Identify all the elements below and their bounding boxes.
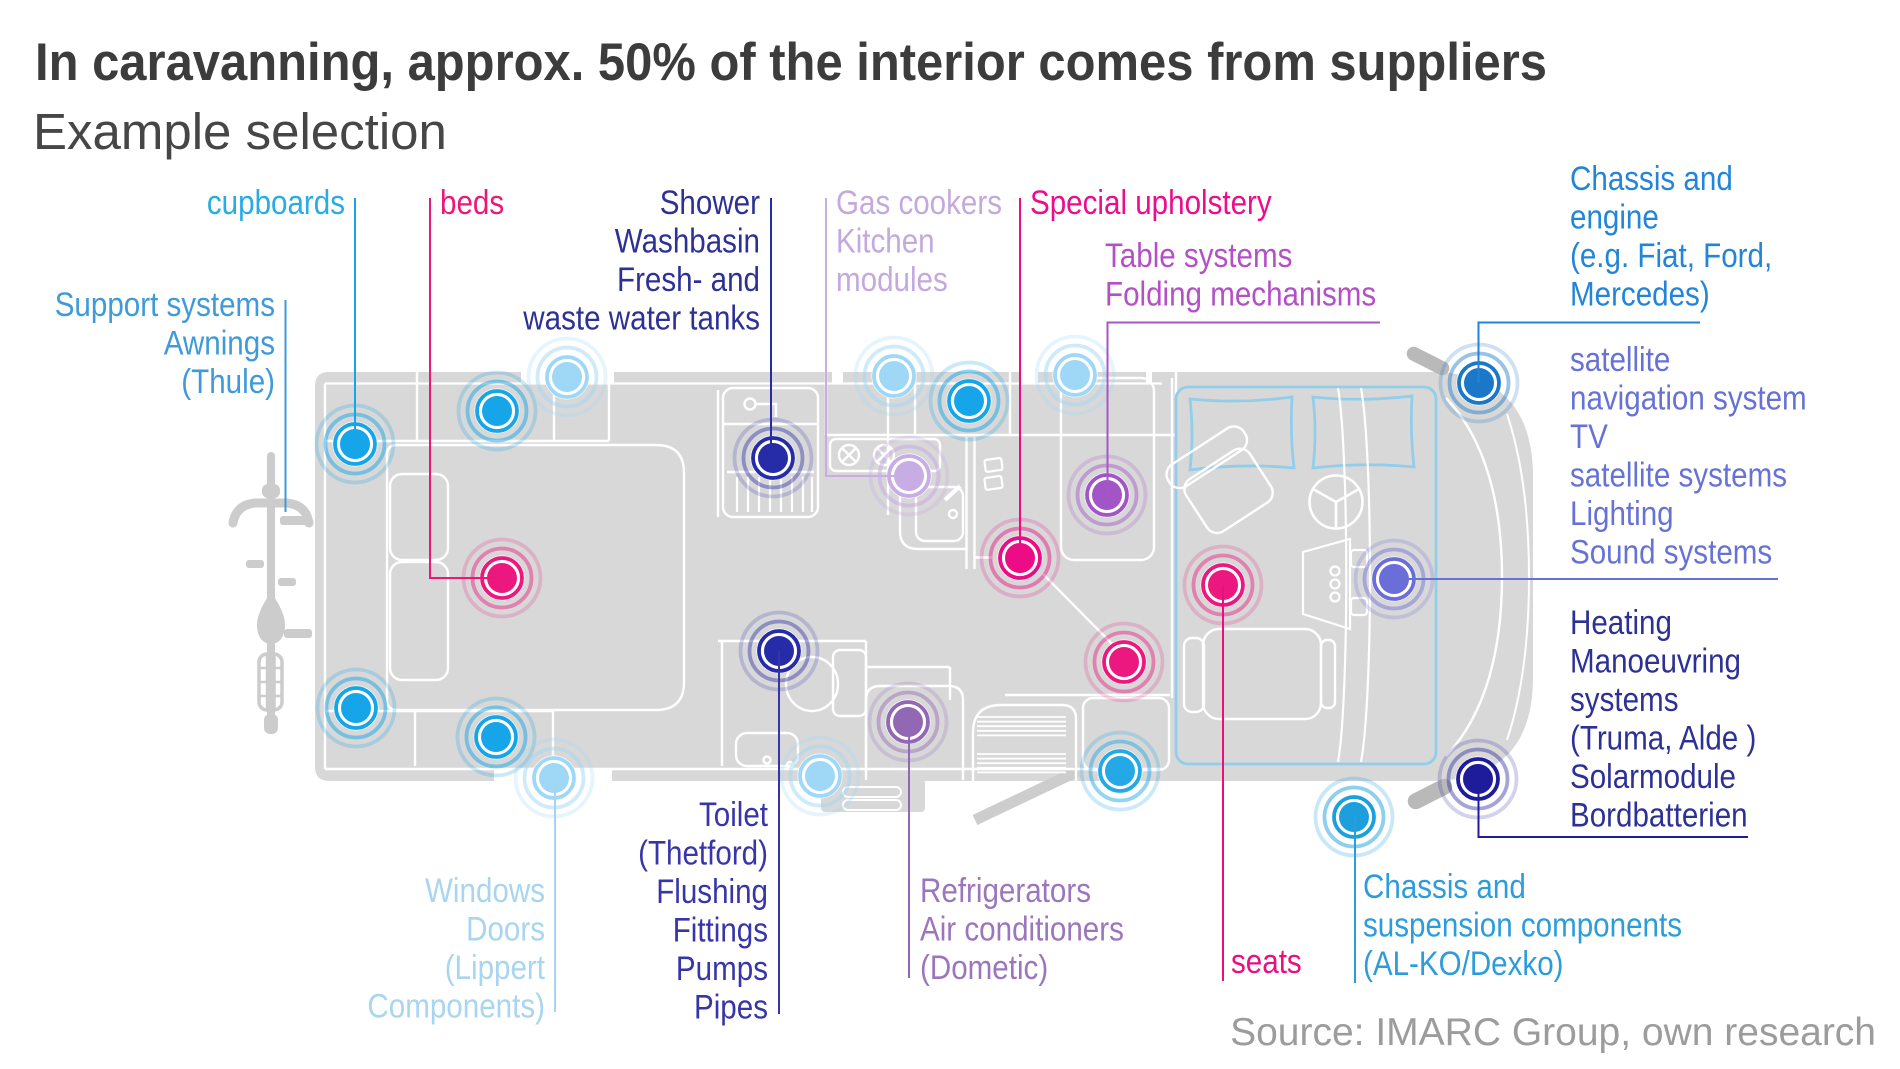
svg-text:modules: modules [836, 261, 948, 299]
svg-text:(Lippert: (Lippert [445, 949, 546, 987]
svg-text:Manoeuvring: Manoeuvring [1570, 643, 1741, 681]
svg-text:Chassis and: Chassis and [1570, 160, 1733, 198]
svg-text:Example selection: Example selection [33, 103, 447, 160]
svg-text:beds: beds [440, 184, 504, 222]
svg-text:satellite systems: satellite systems [1570, 457, 1787, 495]
svg-text:waste water tanks: waste water tanks [522, 300, 760, 338]
svg-text:Support systems: Support systems [55, 286, 275, 324]
svg-text:Pipes: Pipes [694, 989, 768, 1027]
svg-text:(Truma, Alde ): (Truma, Alde ) [1570, 720, 1756, 758]
svg-text:Solarmodule: Solarmodule [1570, 758, 1736, 796]
svg-text:cupboards: cupboards [207, 184, 345, 222]
svg-text:Chassis and: Chassis and [1363, 868, 1526, 906]
svg-text:Awnings: Awnings [164, 325, 275, 363]
svg-text:Toilet: Toilet [699, 796, 768, 834]
svg-text:Pumps: Pumps [676, 950, 768, 988]
svg-text:Lighting: Lighting [1570, 495, 1674, 533]
svg-text:Bordbatterien: Bordbatterien [1570, 797, 1748, 835]
svg-text:Table systems: Table systems [1105, 237, 1292, 275]
svg-text:Washbasin: Washbasin [615, 223, 760, 261]
svg-text:satellite: satellite [1570, 341, 1670, 379]
svg-text:Doors: Doors [466, 911, 545, 949]
svg-text:Components): Components) [367, 988, 545, 1026]
svg-text:engine: engine [1570, 199, 1659, 237]
svg-text:systems: systems [1570, 681, 1679, 719]
svg-text:seats: seats [1231, 943, 1302, 981]
svg-text:Source: IMARC Group, own resea: Source: IMARC Group, own research [1230, 1011, 1876, 1054]
svg-text:TV: TV [1570, 418, 1608, 456]
svg-text:Gas cookers: Gas cookers [836, 184, 1002, 222]
svg-text:In caravanning, approx. 50% of: In caravanning, approx. 50% of the inter… [35, 33, 1547, 92]
svg-text:(e.g. Fiat, Ford,: (e.g. Fiat, Ford, [1570, 237, 1772, 275]
svg-text:Windows: Windows [425, 872, 545, 910]
svg-text:(Thule): (Thule) [181, 363, 275, 401]
svg-text:suspension components: suspension components [1363, 907, 1682, 945]
svg-text:Fresh- and: Fresh- and [617, 261, 760, 299]
svg-text:Folding mechanisms: Folding mechanisms [1105, 276, 1376, 314]
svg-text:Shower: Shower [660, 184, 760, 222]
svg-text:Special upholstery: Special upholstery [1030, 184, 1272, 222]
svg-text:Air conditioners: Air conditioners [920, 911, 1124, 949]
svg-text:navigation system: navigation system [1570, 380, 1807, 418]
svg-text:Refrigerators: Refrigerators [920, 872, 1091, 910]
svg-text:(Dometic): (Dometic) [920, 949, 1048, 987]
svg-text:(Thetford): (Thetford) [638, 835, 768, 873]
svg-text:Sound systems: Sound systems [1570, 534, 1772, 572]
svg-text:Heating: Heating [1570, 604, 1672, 642]
svg-text:Mercedes): Mercedes) [1570, 276, 1710, 314]
svg-text:Flushing: Flushing [656, 873, 768, 911]
svg-text:(AL-KO/Dexko): (AL-KO/Dexko) [1363, 945, 1564, 983]
svg-text:Kitchen: Kitchen [836, 223, 935, 261]
svg-text:Fittings: Fittings [673, 912, 768, 950]
